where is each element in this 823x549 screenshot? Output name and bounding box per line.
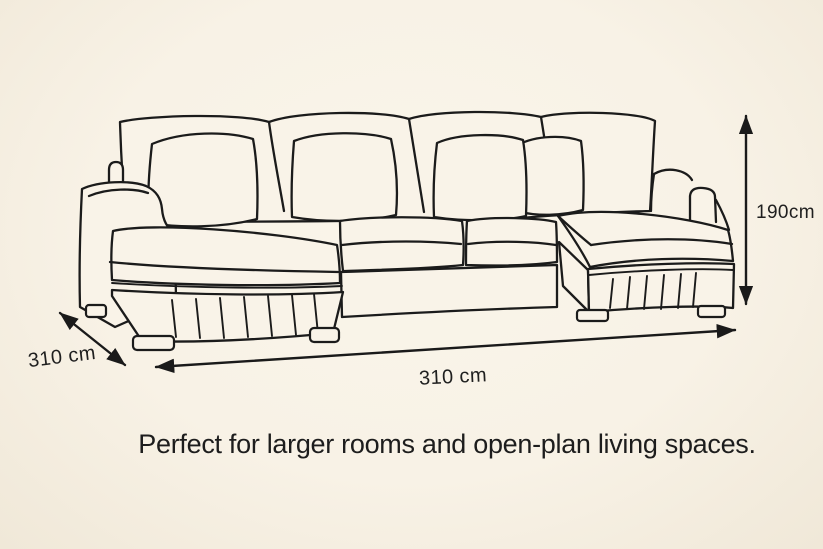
sofa-foot (86, 305, 106, 317)
left-chaise-cushion (111, 227, 340, 285)
sofa-pillow (292, 133, 397, 221)
sofa-illustration (0, 0, 823, 549)
sofa-pillow (148, 134, 257, 227)
caption-text: Perfect for larger rooms and open-plan l… (71, 429, 823, 460)
sofa-drawing (80, 112, 734, 350)
sofa-foot (577, 310, 608, 321)
width-dimension-label: 310 cm (409, 364, 496, 391)
right-arm-top (654, 170, 692, 180)
left-chaise-base (112, 290, 343, 342)
middle-base (341, 265, 557, 317)
sofa-dimension-diagram: 190cm 310 cm 310 cm Perfect for larger r… (0, 0, 823, 549)
right-arm-outer-edge (716, 200, 729, 230)
sofa-foot (133, 336, 174, 350)
sofa-foot (310, 328, 339, 342)
sofa-foot (698, 306, 725, 317)
sofa-pillow (434, 135, 527, 220)
height-dimension-label: 190cm (756, 202, 815, 224)
right-arm-roll (690, 188, 716, 222)
